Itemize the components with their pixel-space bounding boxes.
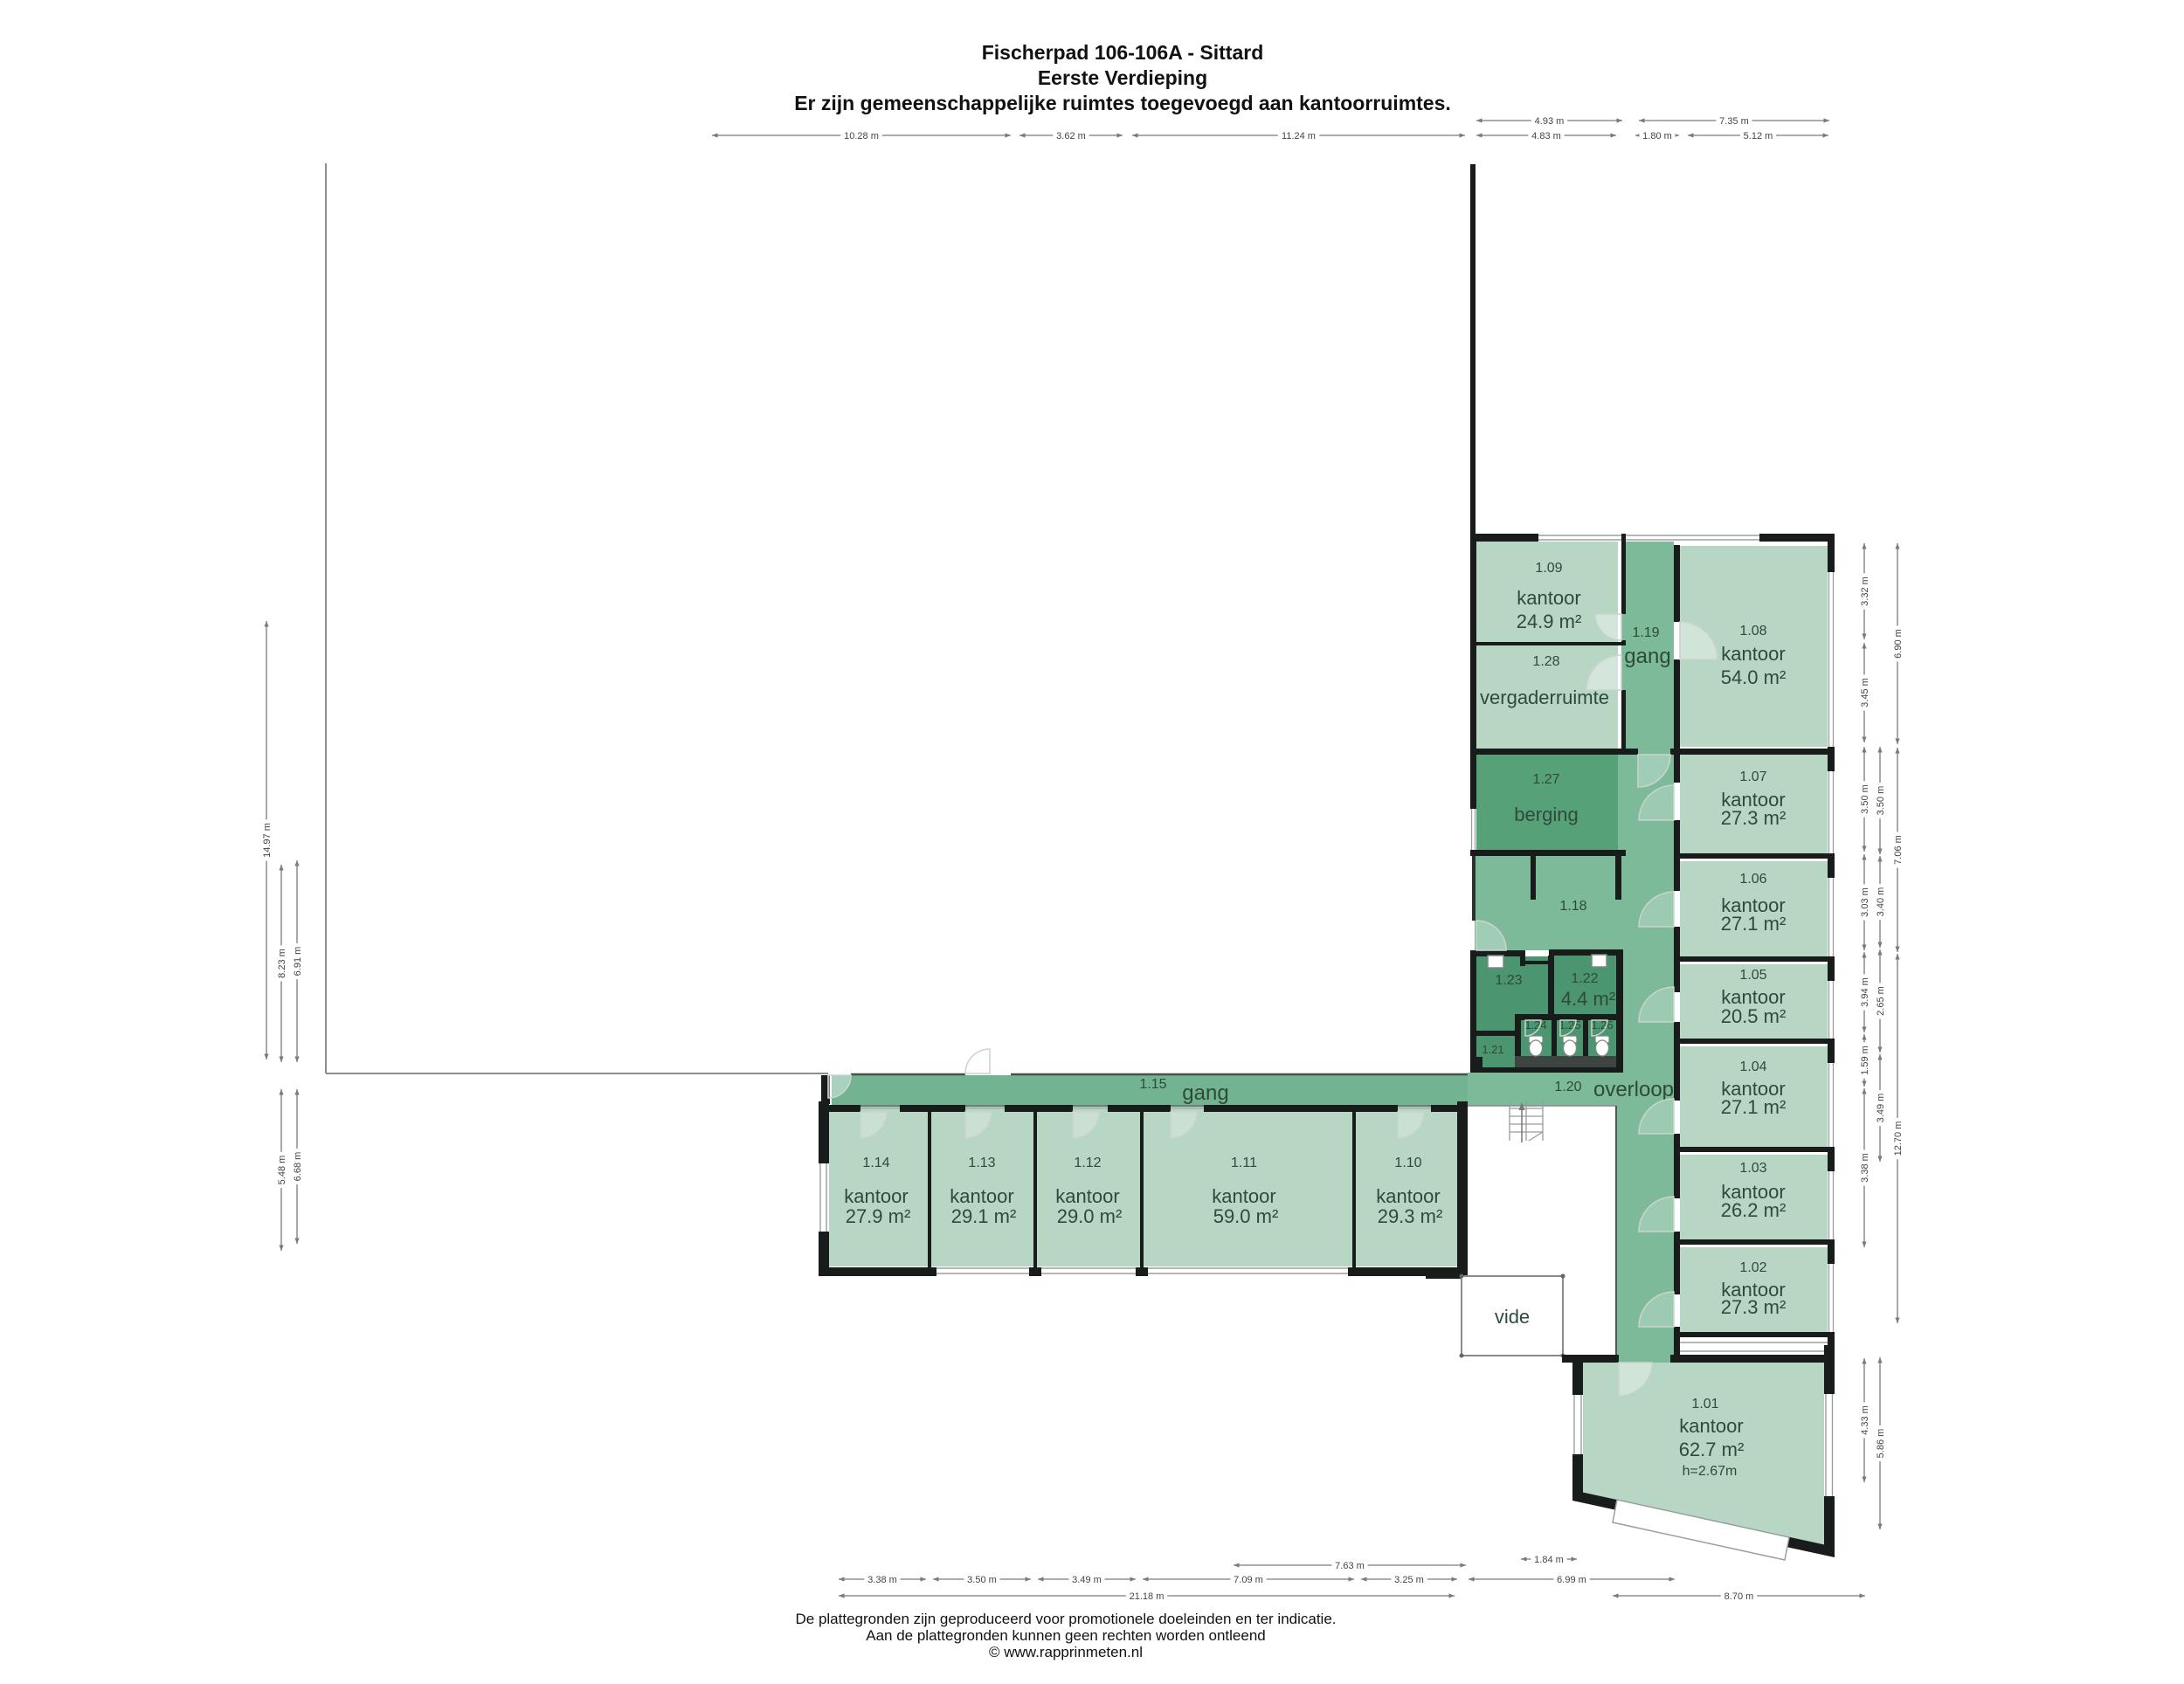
svg-text:1.27: 1.27 [1532, 772, 1559, 787]
svg-text:2.65 m: 2.65 m [1876, 986, 1886, 1016]
svg-text:3.50 m: 3.50 m [1876, 786, 1886, 816]
svg-text:21.18 m: 21.18 m [1130, 1591, 1165, 1602]
svg-text:14.97 m: 14.97 m [262, 823, 273, 858]
svg-text:berging: berging [1514, 804, 1578, 825]
svg-text:1.07: 1.07 [1739, 770, 1766, 784]
svg-text:Er zijn gemeenschappelijke rui: Er zijn gemeenschappelijke ruimtes toege… [794, 92, 1451, 114]
svg-text:24.9 m²: 24.9 m² [1517, 611, 1582, 632]
svg-text:4.83 m: 4.83 m [1531, 131, 1561, 141]
svg-text:1.09: 1.09 [1535, 561, 1562, 576]
svg-text:7.63 m: 7.63 m [1335, 1561, 1365, 1571]
svg-text:1.10: 1.10 [1394, 1156, 1421, 1170]
svg-text:1.18: 1.18 [1559, 899, 1586, 914]
svg-text:3.40 m: 3.40 m [1876, 887, 1886, 917]
svg-text:3.03 m: 3.03 m [1860, 887, 1870, 917]
svg-text:1.12: 1.12 [1074, 1156, 1101, 1170]
svg-text:1.04: 1.04 [1739, 1059, 1766, 1074]
svg-text:3.49 m: 3.49 m [1072, 1575, 1102, 1585]
svg-text:1.20: 1.20 [1554, 1080, 1581, 1094]
svg-text:1.22: 1.22 [1571, 971, 1598, 986]
svg-text:4.33 m: 4.33 m [1860, 1405, 1870, 1435]
svg-text:1.15: 1.15 [1139, 1077, 1166, 1092]
svg-text:7.09 m: 7.09 m [1234, 1575, 1263, 1585]
svg-text:kantoor: kantoor [1376, 1185, 1440, 1207]
svg-text:4.4 m²: 4.4 m² [1561, 988, 1615, 1010]
svg-text:62.7 m²: 62.7 m² [1679, 1439, 1745, 1460]
svg-text:26.2 m²: 26.2 m² [1721, 1199, 1787, 1221]
svg-text:7.06 m: 7.06 m [1893, 835, 1904, 865]
svg-text:6.68 m: 6.68 m [293, 1152, 303, 1182]
svg-text:7.35 m: 7.35 m [1719, 116, 1749, 127]
svg-text:© www.rapprinmeten.nl: © www.rapprinmeten.nl [989, 1644, 1143, 1660]
svg-text:27.1 m²: 27.1 m² [1721, 1096, 1787, 1118]
svg-text:6.99 m: 6.99 m [1557, 1575, 1586, 1585]
svg-text:27.3 m²: 27.3 m² [1721, 1296, 1787, 1318]
svg-text:3.50 m: 3.50 m [1860, 784, 1870, 814]
svg-text:3.50 m: 3.50 m [967, 1575, 997, 1585]
svg-text:1.59 m: 1.59 m [1860, 1046, 1870, 1075]
svg-text:3.38 m: 3.38 m [1860, 1153, 1870, 1183]
svg-text:1.03: 1.03 [1739, 1161, 1766, 1176]
svg-text:27.1 m²: 27.1 m² [1721, 913, 1787, 935]
svg-text:3.25 m: 3.25 m [1394, 1575, 1424, 1585]
svg-text:1.05: 1.05 [1739, 968, 1766, 983]
svg-text:1.21: 1.21 [1482, 1043, 1503, 1056]
svg-text:1.08: 1.08 [1739, 624, 1766, 638]
svg-text:3.94 m: 3.94 m [1860, 977, 1870, 1007]
svg-text:6.91 m: 6.91 m [293, 947, 303, 977]
svg-text:27.3 m²: 27.3 m² [1721, 807, 1787, 829]
svg-text:h=2.67m: h=2.67m [1683, 1464, 1738, 1479]
svg-text:3.38 m: 3.38 m [867, 1575, 897, 1585]
svg-text:29.0 m²: 29.0 m² [1057, 1205, 1123, 1227]
svg-text:1.23: 1.23 [1495, 973, 1522, 988]
svg-text:De plattegronden zijn geproduc: De plattegronden zijn geproduceerd voor … [795, 1611, 1336, 1627]
svg-text:3.62 m: 3.62 m [1056, 131, 1086, 141]
svg-text:12.70 m: 12.70 m [1893, 1122, 1904, 1156]
svg-text:3.45 m: 3.45 m [1860, 678, 1870, 707]
svg-text:gang: gang [1624, 645, 1670, 668]
svg-text:Aan de plattegronden kunnen ge: Aan de plattegronden kunnen geen rechten… [866, 1627, 1265, 1644]
svg-text:11.24 m: 11.24 m [1282, 131, 1316, 141]
svg-text:vide: vide [1495, 1306, 1530, 1328]
svg-text:4.93 m: 4.93 m [1535, 116, 1565, 127]
svg-text:1.84 m: 1.84 m [1534, 1555, 1564, 1565]
svg-text:gang: gang [1182, 1081, 1228, 1105]
svg-text:3.49 m: 3.49 m [1876, 1094, 1886, 1123]
svg-text:8.70 m: 8.70 m [1724, 1591, 1754, 1602]
svg-text:1.19: 1.19 [1632, 625, 1659, 640]
svg-text:5.48 m: 5.48 m [277, 1156, 287, 1185]
svg-text:1.80 m: 1.80 m [1642, 131, 1672, 141]
svg-text:6.90 m: 6.90 m [1893, 629, 1904, 659]
svg-text:10.28 m: 10.28 m [844, 131, 879, 141]
svg-text:1.28: 1.28 [1532, 654, 1559, 669]
svg-text:kantoor: kantoor [844, 1185, 908, 1207]
svg-text:kantoor: kantoor [1679, 1415, 1743, 1437]
svg-text:1.14: 1.14 [862, 1156, 889, 1170]
svg-text:3.32 m: 3.32 m [1860, 576, 1870, 606]
svg-text:kantoor: kantoor [1212, 1185, 1275, 1207]
svg-text:8.23 m: 8.23 m [277, 949, 287, 978]
svg-text:kantoor: kantoor [1517, 587, 1580, 609]
svg-text:overloop: overloop [1593, 1078, 1674, 1101]
svg-text:kantoor: kantoor [1055, 1185, 1119, 1207]
svg-text:1.13: 1.13 [968, 1156, 995, 1170]
svg-text:1.06: 1.06 [1739, 872, 1766, 887]
svg-text:1.11: 1.11 [1231, 1156, 1257, 1170]
svg-text:29.1 m²: 29.1 m² [951, 1205, 1017, 1227]
svg-text:1.02: 1.02 [1739, 1260, 1766, 1275]
svg-text:1.01: 1.01 [1691, 1397, 1718, 1411]
svg-text:20.5 m²: 20.5 m² [1721, 1005, 1787, 1027]
svg-text:5.12 m: 5.12 m [1744, 131, 1773, 141]
svg-text:Eerste Verdieping: Eerste Verdieping [1038, 66, 1207, 89]
svg-text:29.3 m²: 29.3 m² [1378, 1205, 1443, 1227]
svg-text:Fischerpad 106-106A - Sittard: Fischerpad 106-106A - Sittard [982, 41, 1264, 64]
svg-text:kantoor: kantoor [1721, 643, 1785, 665]
svg-text:kantoor: kantoor [950, 1185, 1013, 1207]
svg-text:54.0 m²: 54.0 m² [1721, 666, 1787, 688]
svg-text:5.86 m: 5.86 m [1876, 1429, 1886, 1459]
svg-text:59.0 m²: 59.0 m² [1213, 1205, 1279, 1227]
svg-text:27.9 m²: 27.9 m² [846, 1205, 911, 1227]
